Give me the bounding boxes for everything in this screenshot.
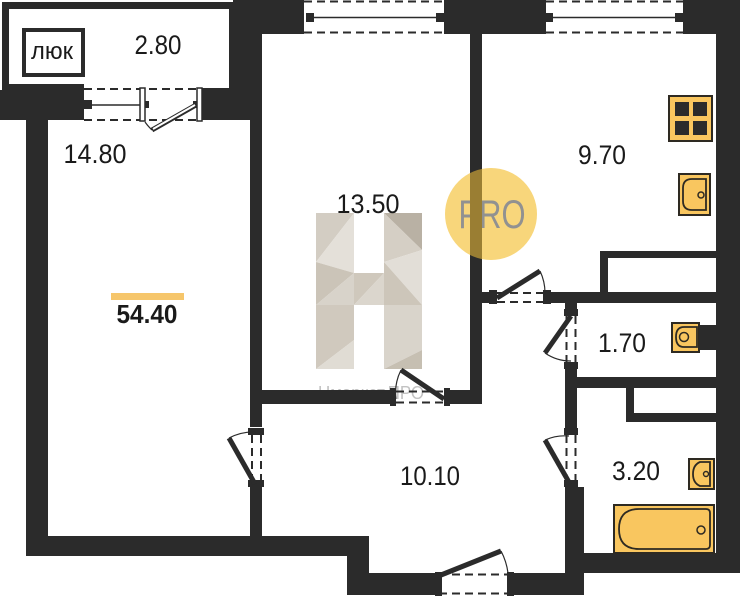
svg-text:14.80: 14.80	[64, 139, 127, 169]
svg-text:люк: люк	[31, 38, 73, 65]
svg-text:PRO: PRO	[459, 193, 526, 237]
svg-text:3.20: 3.20	[612, 456, 660, 486]
svg-text:13.50: 13.50	[337, 189, 400, 219]
svg-text:1.70: 1.70	[598, 328, 646, 358]
svg-text:10.10: 10.10	[400, 461, 460, 491]
svg-text:9.70: 9.70	[578, 140, 626, 170]
svg-text:54.40: 54.40	[117, 299, 178, 329]
svg-text:2.80: 2.80	[135, 30, 182, 60]
